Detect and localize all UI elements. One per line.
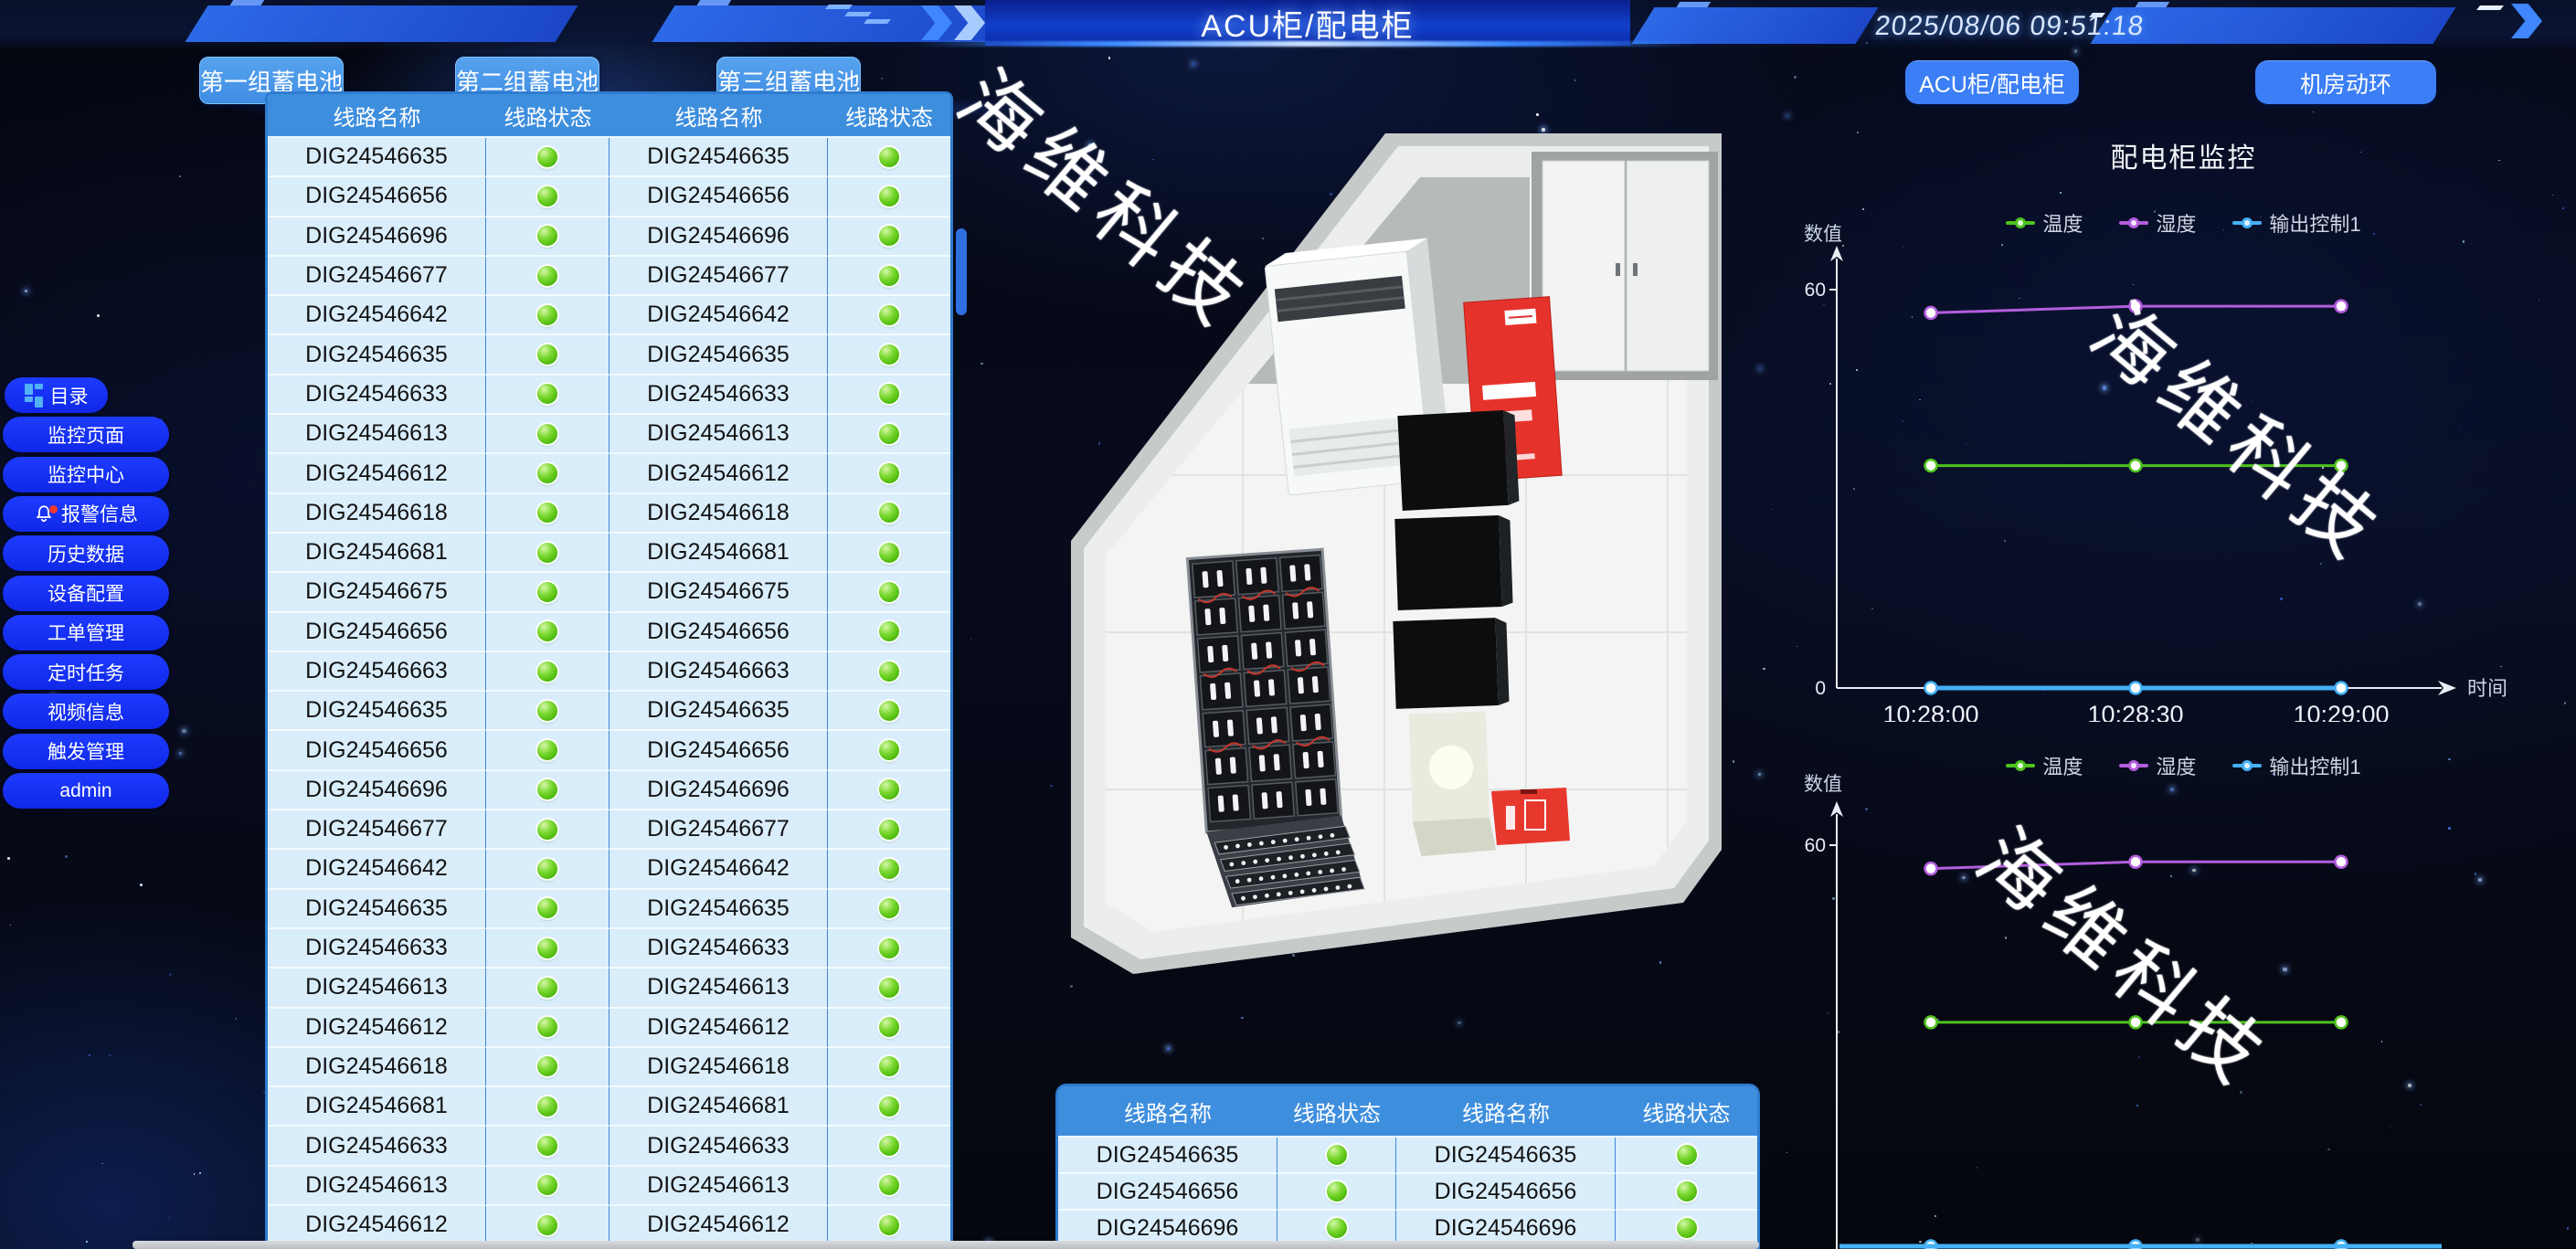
line-status-cell <box>828 969 950 1008</box>
line-name-cell: DIG24546656 <box>268 177 486 217</box>
star <box>89 1054 90 1056</box>
line-status-cell <box>486 217 610 257</box>
line-status-cell <box>486 929 610 969</box>
status-dot-icon <box>537 740 557 760</box>
title-glow-line <box>914 41 1700 47</box>
star <box>10 925 11 926</box>
status-dot-icon <box>537 662 557 682</box>
star <box>25 290 27 292</box>
line-name-cell: DIG24546675 <box>268 573 486 612</box>
header-decor-bar <box>186 5 578 42</box>
line-name-cell: DIG24546656 <box>268 613 486 652</box>
line-status-cell <box>486 257 610 296</box>
line-name-cell: DIG24546696 <box>268 771 486 810</box>
line-name-cell: DIG24546635 <box>610 890 828 929</box>
status-dot-icon <box>879 859 899 879</box>
status-dot-icon <box>1677 1218 1697 1238</box>
dashboard-root: ACU柜/配电柜 2025/08/06 09:51:18 第一组蓄电池第二组蓄电… <box>0 0 2576 1249</box>
line-status-cell <box>828 217 950 257</box>
line-status-cell <box>828 296 950 335</box>
line-name-cell: DIG24546681 <box>268 1087 486 1127</box>
line-name-cell: DIG24546696 <box>610 217 828 257</box>
line-status-cell <box>828 534 950 573</box>
status-dot-icon <box>537 859 557 879</box>
status-dot-icon <box>537 1056 557 1076</box>
line-name-cell: DIG24546681 <box>268 534 486 573</box>
line-status-cell <box>828 1009 950 1048</box>
status-dot-icon <box>537 938 557 958</box>
status-dot-icon <box>537 463 557 483</box>
line-status-cell <box>828 1206 950 1245</box>
status-dot-icon <box>879 820 899 840</box>
line-name-cell: DIG24546677 <box>610 257 828 296</box>
line-status-cell <box>828 177 950 217</box>
star <box>1794 76 1797 79</box>
star <box>981 363 983 365</box>
status-dot-icon <box>879 1215 899 1235</box>
line-status-cell <box>828 929 950 969</box>
status-dot-icon <box>879 344 899 365</box>
status-dot-icon <box>537 1215 557 1235</box>
sidebar-item-触发管理[interactable]: 触发管理 <box>3 734 169 769</box>
status-dot-icon <box>537 1096 557 1117</box>
line-name-cell: DIG24546635 <box>1396 1138 1616 1174</box>
sidebar-item-label: admin <box>59 780 111 802</box>
status-dot-icon <box>537 543 557 563</box>
white-equipment-box <box>1409 711 1496 856</box>
line-name-cell: DIG24546675 <box>610 573 828 612</box>
status-dot-icon <box>879 1017 899 1037</box>
line-status-cell <box>486 376 610 415</box>
line-name-cell: DIG24546696 <box>268 217 486 257</box>
line-status-cell <box>1616 1138 1757 1174</box>
fire-extinguisher-cabinet-lower <box>1491 788 1570 845</box>
status-dot-icon <box>537 779 557 799</box>
line-name-cell: DIG24546677 <box>268 257 486 296</box>
status-dot-icon <box>537 621 557 641</box>
nav-tab-2[interactable]: 机房动环 <box>2255 60 2436 104</box>
line-status-cell <box>828 376 950 415</box>
line-name-cell: DIG24546633 <box>268 929 486 969</box>
header-decor-slant <box>864 19 891 24</box>
line-status-cell <box>486 454 610 493</box>
status-dot-icon <box>537 1175 557 1195</box>
star <box>2313 111 2314 112</box>
line-name-cell: DIG24546677 <box>610 810 828 850</box>
line-name-cell: DIG24546613 <box>268 969 486 1008</box>
header-decor-slant <box>844 12 872 16</box>
status-dot-icon <box>879 503 899 523</box>
line-status-cell <box>1277 1138 1396 1174</box>
header-decor-slant <box>825 5 853 9</box>
table-header: 线路名称线路状态线路名称线路状态 <box>268 94 950 138</box>
sidebar-item-label: 监控中心 <box>48 460 124 488</box>
line-name-cell: DIG24546635 <box>1058 1138 1277 1174</box>
status-dot-icon <box>537 424 557 444</box>
status-dot-icon <box>1327 1181 1347 1201</box>
line-status-cell <box>828 454 950 493</box>
sidebar-item-工单管理[interactable]: 工单管理 <box>3 615 169 651</box>
column-header: 线路名称 <box>610 94 828 136</box>
svg-text:60: 60 <box>1805 835 1826 856</box>
table-vertical-scrollbar-thumb[interactable] <box>956 228 967 315</box>
line-status-cell <box>828 810 950 850</box>
status-dot-icon <box>879 463 899 483</box>
line-name-cell: DIG24546612 <box>610 454 828 493</box>
line-name-cell: DIG24546633 <box>610 376 828 415</box>
line-status-cell <box>486 1206 610 1245</box>
status-dot-icon <box>537 701 557 721</box>
sidebar-item-label: 工单管理 <box>48 619 124 646</box>
line-name-cell: DIG24546633 <box>610 1127 828 1166</box>
line-status-cell <box>828 692 950 731</box>
menu-grid-icon <box>25 384 43 408</box>
line-name-cell: DIG24546612 <box>268 1009 486 1048</box>
status-dot-icon <box>879 384 899 404</box>
line-name-cell: DIG24546677 <box>268 810 486 850</box>
datetime-display: 2025/08/06 09:51:18 <box>1873 11 2146 42</box>
double-door <box>1532 152 1718 380</box>
sidebar-item-label: 监控页面 <box>48 421 124 449</box>
line-name-cell: DIG24546633 <box>268 376 486 415</box>
line-name-cell: DIG24546612 <box>268 1206 486 1245</box>
status-dot-icon <box>879 1175 899 1195</box>
status-dot-icon <box>537 226 557 246</box>
star <box>97 314 100 317</box>
line-name-cell: DIG24546618 <box>268 494 486 534</box>
line-status-cell <box>486 810 610 850</box>
status-dot-icon <box>537 582 557 602</box>
line-name-cell: DIG24546656 <box>610 613 828 652</box>
line-name-cell: DIG24546612 <box>268 454 486 493</box>
line-name-cell: DIG24546633 <box>610 929 828 969</box>
alert-dot <box>49 505 58 513</box>
line-name-cell: DIG24546613 <box>610 1167 828 1206</box>
line-name-cell: DIG24546642 <box>610 850 828 889</box>
horizontal-scrollbar[interactable] <box>133 1241 1759 1249</box>
status-dot-icon <box>879 1096 899 1117</box>
line-name-cell: DIG24546642 <box>610 296 828 335</box>
status-dot-icon <box>537 266 557 286</box>
line-status-cell <box>1616 1174 1757 1211</box>
line-name-cell: DIG24546618 <box>268 1048 486 1087</box>
star <box>65 855 68 858</box>
line-name-cell: DIG24546681 <box>610 1087 828 1127</box>
sidebar-item-视频信息[interactable]: 视频信息 <box>3 693 169 729</box>
line-status-cell <box>486 652 610 692</box>
line-name-cell: DIG24546635 <box>268 692 486 731</box>
status-dot-icon <box>1677 1181 1697 1201</box>
line-name-cell: DIG24546642 <box>268 850 486 889</box>
line-name-cell: DIG24546635 <box>268 890 486 929</box>
line-status-cell <box>828 890 950 929</box>
line-status-cell <box>486 573 610 612</box>
line-name-cell: DIG24546613 <box>268 415 486 454</box>
star <box>7 857 10 860</box>
star <box>881 78 883 79</box>
status-dot-icon <box>879 740 899 760</box>
sidebar-item-历史数据[interactable]: 历史数据 <box>3 535 169 571</box>
status-dot-icon <box>879 662 899 682</box>
line-name-cell: DIG24546635 <box>610 335 828 375</box>
status-dot-icon <box>537 503 557 523</box>
header-decor-bar <box>1632 7 1879 44</box>
star <box>199 1172 201 1174</box>
line-name-cell: DIG24546618 <box>610 494 828 534</box>
status-dot-icon <box>879 701 899 721</box>
line-name-cell: DIG24546656 <box>1396 1174 1616 1211</box>
line-name-cell: DIG24546635 <box>610 138 828 177</box>
status-dot-icon <box>537 1017 557 1037</box>
star <box>194 1173 195 1174</box>
line-name-cell: DIG24546613 <box>610 969 828 1008</box>
star <box>168 1217 171 1220</box>
svg-text:时间: 时间 <box>2467 677 2507 700</box>
star <box>1786 1152 1787 1153</box>
line-name-cell: DIG24546642 <box>268 296 486 335</box>
line-status-table-main: 线路名称线路状态线路名称线路状态 DIG24546635DIG24546635D… <box>265 91 953 1249</box>
star <box>169 973 172 976</box>
status-dot-icon <box>1677 1145 1697 1165</box>
line-name-cell: DIG24546612 <box>610 1206 828 1245</box>
line-status-cell <box>486 731 610 770</box>
line-name-cell: DIG24546635 <box>610 692 828 731</box>
star <box>1786 114 1788 117</box>
sidebar-item-label: 设备配置 <box>48 579 124 607</box>
sidebar-item-目录[interactable]: 目录 <box>5 377 108 413</box>
line-name-cell: DIG24546612 <box>610 1009 828 1048</box>
page-title: ACU柜/配电柜 <box>1201 1 1414 46</box>
sidebar-item-label: 目录 <box>50 382 89 409</box>
line-status-cell <box>828 613 950 652</box>
line-status-cell <box>486 1167 610 1206</box>
line-status-cell <box>486 177 610 217</box>
star <box>140 884 143 886</box>
status-dot-icon <box>537 898 557 918</box>
status-dot-icon <box>879 978 899 998</box>
sidebar-item-label: 定时任务 <box>48 659 124 686</box>
line-name-cell: DIG24546663 <box>268 652 486 692</box>
line-name-cell: DIG24546635 <box>268 335 486 375</box>
star <box>236 1018 237 1019</box>
status-dot-icon <box>879 1056 899 1076</box>
status-dot-icon <box>1327 1145 1347 1165</box>
line-status-cell <box>486 494 610 534</box>
line-status-cell <box>486 692 610 731</box>
line-status-cell <box>486 969 610 1008</box>
sidebar-item-label: 视频信息 <box>48 698 124 725</box>
star <box>1536 113 1539 116</box>
status-dot-icon <box>537 186 557 206</box>
line-status-cell <box>486 296 610 335</box>
page-title-band: ACU柜/配电柜 <box>985 0 1630 46</box>
status-dot-icon <box>537 344 557 365</box>
star <box>179 175 181 177</box>
svg-text:60: 60 <box>1805 280 1826 301</box>
line-name-cell: DIG24546681 <box>610 534 828 573</box>
line-status-cell <box>828 1167 950 1206</box>
line-status-cell <box>828 771 950 810</box>
line-name-cell: DIG24546656 <box>1058 1174 1277 1211</box>
line-status-cell <box>486 415 610 454</box>
line-status-cell <box>486 335 610 375</box>
svg-text:0: 0 <box>1815 678 1826 699</box>
line-status-cell <box>828 652 950 692</box>
line-status-cell <box>486 1127 610 1166</box>
star <box>970 639 971 640</box>
line-status-cell <box>486 890 610 929</box>
line-status-cell <box>486 613 610 652</box>
column-header: 线路状态 <box>828 94 950 136</box>
sidebar-item-设备配置[interactable]: 设备配置 <box>3 576 169 611</box>
sidebar-item-监控页面[interactable]: 监控页面 <box>3 417 169 452</box>
status-dot-icon <box>879 779 899 799</box>
line-name-cell: DIG24546656 <box>610 177 828 217</box>
line-name-cell: DIG24546618 <box>610 1048 828 1087</box>
status-dot-icon <box>879 1136 899 1156</box>
line-status-cell <box>486 534 610 573</box>
line-name-cell: DIG24546635 <box>268 138 486 177</box>
status-dot-icon <box>879 226 899 246</box>
sidebar-item-定时任务[interactable]: 定时任务 <box>3 654 169 690</box>
status-dot-icon <box>879 266 899 286</box>
status-dot-icon <box>879 424 899 444</box>
status-dot-icon <box>879 186 899 206</box>
header-decor-slant <box>2476 5 2504 10</box>
status-dot-icon <box>537 1136 557 1156</box>
status-dot-icon <box>879 898 899 918</box>
line-status-cell <box>828 1048 950 1087</box>
server-cabinet <box>1393 618 1509 709</box>
line-status-cell <box>828 415 950 454</box>
line-status-cell <box>1277 1174 1396 1211</box>
line-status-cell <box>828 731 950 770</box>
line-name-cell: DIG24546696 <box>610 771 828 810</box>
status-dot-icon <box>879 621 899 641</box>
line-status-cell <box>486 1048 610 1087</box>
line-name-cell: DIG24546613 <box>610 415 828 454</box>
line-status-cell <box>486 771 610 810</box>
column-header: 线路状态 <box>486 94 610 136</box>
line-status-table-bottom: 线路名称线路状态线路名称线路状态 DIG24546635DIG24546635D… <box>1055 1084 1760 1249</box>
status-dot-icon <box>879 147 899 167</box>
status-dot-icon <box>879 938 899 958</box>
server-cabinet <box>1394 515 1512 610</box>
line-status-cell <box>828 850 950 889</box>
server-cabinet <box>1397 409 1519 511</box>
line-name-cell: DIG24546656 <box>610 731 828 770</box>
status-dot-icon <box>537 978 557 998</box>
star <box>86 1241 88 1243</box>
line-name-cell: DIG24546663 <box>610 652 828 692</box>
status-dot-icon <box>879 582 899 602</box>
status-dot-icon <box>537 147 557 167</box>
star <box>179 752 182 755</box>
line-status-cell <box>828 494 950 534</box>
nav-tab-1[interactable]: ACU柜/配电柜 <box>1905 60 2079 104</box>
sidebar-item-label: 触发管理 <box>48 737 124 765</box>
line-status-cell <box>828 138 950 177</box>
column-header: 线路名称 <box>268 94 486 136</box>
status-dot-icon <box>537 384 557 404</box>
line-status-cell <box>828 335 950 375</box>
line-name-cell: DIG24546633 <box>268 1127 486 1166</box>
line-name-cell: DIG24546656 <box>268 731 486 770</box>
star <box>109 1054 111 1057</box>
line-name-cell: DIG24546613 <box>268 1167 486 1206</box>
star <box>101 1163 102 1164</box>
status-dot-icon <box>1327 1218 1347 1238</box>
line-status-cell <box>828 1087 950 1127</box>
alarm-bell-icon <box>34 503 54 524</box>
sidebar-item-label: 报警信息 <box>61 500 138 527</box>
status-dot-icon <box>879 305 899 325</box>
line-status-cell <box>486 138 610 177</box>
line-status-cell <box>828 573 950 612</box>
sidebar-item-监控中心[interactable]: 监控中心 <box>3 457 169 492</box>
sidebar-item-label: 历史数据 <box>48 540 124 567</box>
line-status-cell <box>486 1009 610 1048</box>
star <box>1574 79 1576 81</box>
sidebar-item-admin[interactable]: admin <box>3 773 169 809</box>
status-dot-icon <box>537 820 557 840</box>
line-status-cell <box>486 850 610 889</box>
sidebar-item-报警信息[interactable]: 报警信息 <box>3 496 169 532</box>
star <box>1192 62 1196 67</box>
status-dot-icon <box>537 305 557 325</box>
star <box>1108 57 1110 58</box>
line-status-cell <box>486 1087 610 1127</box>
star <box>182 729 186 734</box>
line-status-cell <box>828 257 950 296</box>
line-status-cell <box>828 1127 950 1166</box>
status-dot-icon <box>879 543 899 563</box>
